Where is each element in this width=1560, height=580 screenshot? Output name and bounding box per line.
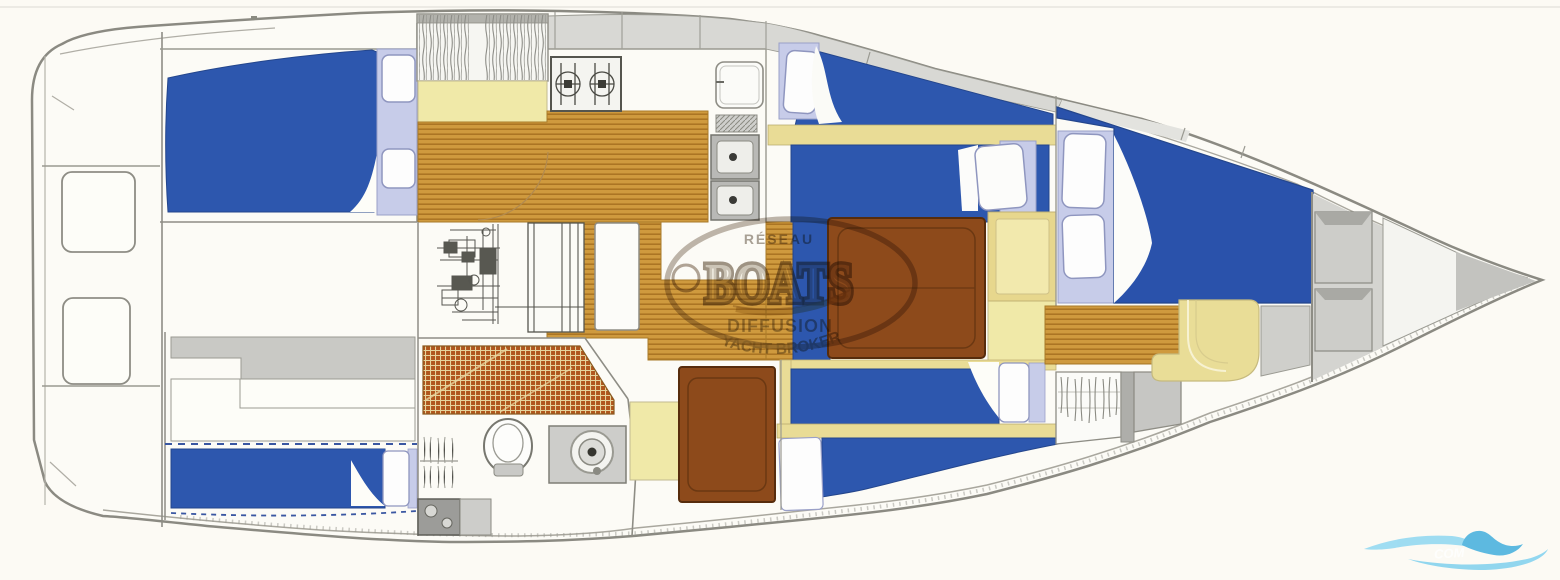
svg-text:RÉSEAU: RÉSEAU	[744, 231, 814, 247]
svg-text:COM: COM	[1434, 545, 1466, 562]
svg-text:BOATS: BOATS	[705, 253, 853, 315]
svg-text:DIFFUSION: DIFFUSION	[727, 316, 833, 336]
